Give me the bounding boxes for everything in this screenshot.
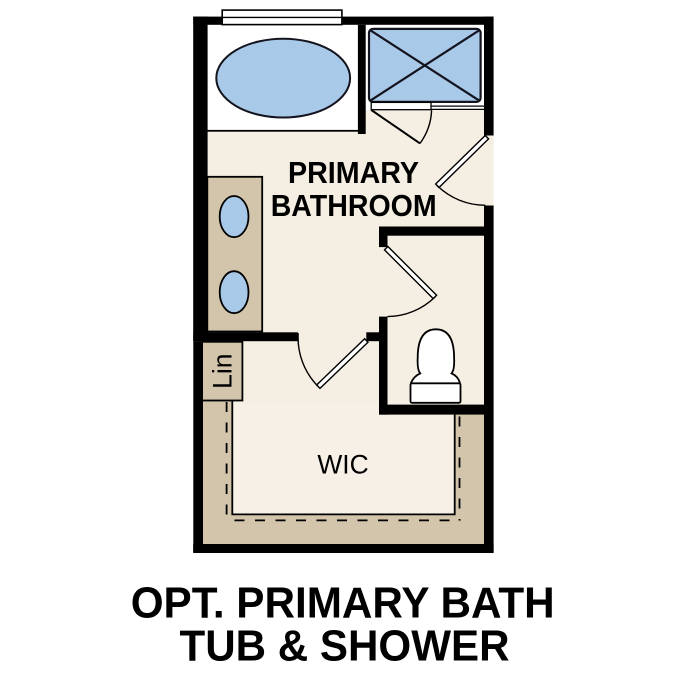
svg-text:PRIMARY: PRIMARY	[288, 156, 419, 190]
svg-text:WIC: WIC	[317, 450, 368, 480]
svg-text:OPT. PRIMARY BATH: OPT. PRIMARY BATH	[131, 580, 555, 628]
svg-text:BATHROOM: BATHROOM	[271, 189, 437, 223]
svg-text:TUB & SHOWER: TUB & SHOWER	[180, 623, 510, 671]
svg-text:Lin: Lin	[207, 354, 237, 389]
